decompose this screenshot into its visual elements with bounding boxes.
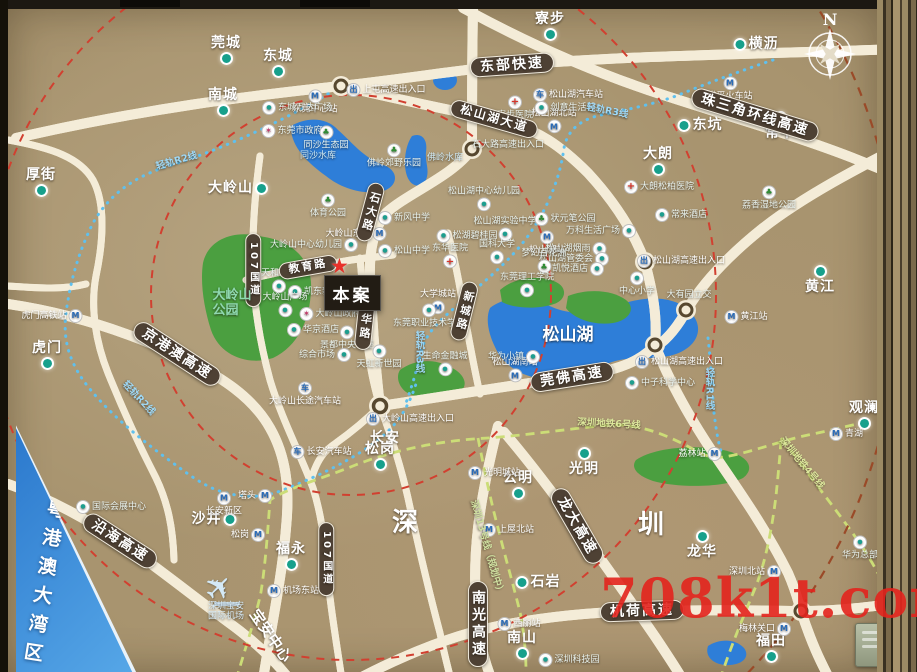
rail-label: 轻轨R1线 (703, 368, 714, 410)
cap-label: 莞佛高速 (529, 361, 615, 394)
rail-label: 轻轨R2线 (155, 151, 199, 173)
sta-icon: M (251, 528, 265, 542)
ceiling-mark (300, 0, 370, 7)
label-text: 莞城 (211, 35, 241, 51)
label-text: 中心小学 (619, 286, 655, 296)
label-text: 同沙生态园 (303, 140, 348, 150)
town-dot-icon (217, 104, 230, 117)
label-text: 深 (392, 509, 418, 539)
bus-label: 车大岭山长途汽车站 (269, 381, 341, 406)
gov-icon: ✶ (261, 124, 275, 138)
sta-label: M光明城站 (468, 466, 520, 480)
poi-icon: ● (853, 535, 867, 549)
label-text: 莞佛高速 (529, 361, 615, 394)
cap-label: 南光高速 (468, 581, 488, 667)
sta-icon: M (468, 466, 482, 480)
area-label: 深 (392, 509, 418, 539)
label-text: 梦幻百花洲 (521, 248, 566, 258)
map-photo: N 粤港澳大湾区 ✈ 莞城东城南城寮步横沥常平东坑大朗厚街大岭山黄江虎门观澜长安… (0, 0, 917, 672)
watermark-text: 708k1t.com (600, 566, 917, 630)
label-text: 机场东站 (283, 586, 319, 596)
sta-label: M西丽站 (497, 617, 540, 631)
poi-label: 东莞理工学院● (500, 272, 554, 297)
poi-label: 国科大学● (479, 239, 515, 264)
label-text: 东城万达广场 (278, 103, 332, 113)
bus-icon: 车 (298, 381, 312, 395)
cap-label: 107国道 (318, 522, 334, 596)
bus-icon: 车 (533, 88, 547, 102)
label-text: 荔林站 (678, 449, 705, 459)
label-text: 大朗松柏医院 (640, 182, 694, 192)
poi-label: 华为小镇● (488, 350, 540, 364)
town-dot-icon (35, 184, 48, 197)
label-text: 东华医院 (432, 243, 468, 253)
label-text: 中子科学中心 (641, 378, 695, 388)
sta-icon: M (547, 120, 561, 134)
label-text: 松山湖 (543, 326, 594, 346)
town-label: 福田 (756, 633, 786, 663)
poi-label: ●国际会展中心 (76, 500, 146, 514)
label-text: 光明 (569, 461, 599, 477)
label-text: 福永 (276, 541, 306, 557)
sta-label: 虎门高铁站M (21, 309, 82, 323)
exit-label: 出大岭山高速出入口 (366, 412, 454, 426)
poi-icon: ● (538, 653, 552, 667)
label-text: 佛岭水库 (427, 153, 463, 163)
label-text: 大有园立交 (666, 290, 711, 300)
poi-label: 万科生活广场● (566, 224, 636, 238)
exit-icon: 出 (637, 254, 651, 268)
label-text: 上屋北站 (498, 525, 534, 535)
poi-icon: ● (630, 271, 644, 285)
sta-label: M上屋北站 (482, 523, 534, 537)
label-text: 松岗 (231, 530, 249, 540)
poi-icon: ● (490, 251, 504, 265)
label-text: 大岭山中心幼儿园 (270, 240, 342, 250)
poi-icon: ● (344, 238, 358, 252)
sta-label: 塔头M (238, 489, 272, 503)
cap-label: 沿海高速 (79, 510, 160, 573)
park-icon: ♣ (387, 143, 401, 157)
label-text: 南光高速 (468, 581, 488, 667)
label-text: 宝安中心 (246, 606, 295, 665)
cap-label: 京港澳高速 (130, 318, 225, 389)
area-label: 松山湖 (543, 326, 594, 346)
park-label: 梦幻百花洲♣ (521, 248, 566, 273)
rail-label: 轻轨R3线 (413, 331, 424, 373)
park-icon: ♣ (534, 212, 548, 226)
town-label: 大岭山 (208, 180, 268, 196)
label-text: 轻轨R3线 (413, 331, 424, 373)
sta-icon: M (829, 427, 843, 441)
label-text: 大岭山广场 (262, 292, 307, 302)
town-label: 黄江 (805, 265, 835, 295)
label-text: 上屯高速出入口 (362, 85, 425, 95)
plain-label: 佛岭水库 (427, 153, 463, 163)
label-text: 东坑 (693, 117, 723, 133)
label-text: 大朗 (643, 146, 673, 162)
town-dot-icon (516, 576, 529, 589)
label-text: 体育公园 (310, 208, 346, 218)
town-label: 厚街 (26, 167, 56, 197)
label-text: 虎门高铁站 (21, 311, 66, 321)
label-text: 南山 (507, 630, 537, 646)
hosp-icon: + (624, 180, 638, 194)
cap-label: 龙大高速 (547, 485, 606, 568)
poi-icon: ● (287, 323, 301, 337)
label-text: 龙华 (687, 544, 717, 560)
label-text: 深圳宝安 国际机场 (208, 602, 244, 623)
poi-icon: ● (477, 198, 491, 212)
sta-icon: M (373, 227, 387, 241)
sta-icon: M (508, 369, 522, 383)
sta-label: M青湖 (829, 427, 863, 441)
label-text: 大岭山 (208, 180, 253, 196)
label-text: 深圳地铁4号线 (776, 436, 825, 492)
town-dot-icon (814, 265, 827, 278)
rail-label: 深圳地铁6号线 (577, 418, 641, 432)
poi-icon: ● (378, 211, 392, 225)
hosp-icon: + (443, 255, 457, 269)
area-label: 宝安中心 (246, 606, 295, 665)
poi-icon: ● (340, 325, 354, 339)
town-label: 南山 (507, 630, 537, 660)
label-text: 寮步 (535, 11, 565, 27)
label-text: 华为总部 (842, 550, 878, 560)
poi-icon: ● (378, 244, 392, 258)
label-text: 长安汽车站 (306, 447, 351, 457)
label-text: 新风中学 (394, 213, 430, 223)
town-label: 横沥 (734, 36, 779, 52)
town-label: 石岩 (516, 574, 561, 590)
sta-icon: M (69, 309, 83, 323)
label-text: 深圳科技园 (554, 655, 599, 665)
town-label: 南城 (208, 87, 238, 117)
label-text: 沿海高速 (79, 510, 160, 573)
town-dot-icon (255, 182, 268, 195)
town-dot-icon (41, 357, 54, 370)
ceiling-mark (120, 0, 180, 7)
poi-label: ●常来酒店 (655, 208, 707, 222)
label-text: 荔香湿地公园 (742, 200, 796, 210)
sta-icon: M (723, 76, 737, 90)
exit-label: 出上屯高速出入口 (346, 83, 425, 97)
town-dot-icon (220, 52, 233, 65)
poi-label: ●中心小学 (619, 271, 655, 296)
park-icon: ♣ (319, 125, 333, 139)
area-label: 圳 (638, 511, 664, 541)
plain-label: 同沙水库 (300, 151, 336, 161)
label-text: 东部快速 (469, 52, 554, 78)
board-frame-edge (0, 0, 8, 672)
label-text: 轻轨R2线 (120, 380, 157, 418)
label-text: 国际会展中心 (92, 502, 146, 512)
town-dot-icon (652, 163, 665, 176)
rail-label: 轻轨R2线 (120, 380, 157, 418)
town-dot-icon (512, 487, 525, 500)
label-text: 京港澳高速 (130, 318, 225, 389)
poi-label: 生命金融城● (422, 351, 467, 376)
poi-icon: ● (262, 101, 276, 115)
label-text: 常来酒店 (671, 210, 707, 220)
poi-icon: ● (422, 303, 436, 317)
label-text: 横沥 (749, 36, 779, 52)
town-dot-icon (285, 558, 298, 571)
poi-label: ●松山中学 (378, 244, 430, 258)
poi-icon: ● (590, 262, 604, 276)
label-text: 珠三角环线高速 (689, 86, 821, 144)
town-dot-icon (678, 119, 691, 132)
label-text: 南城 (208, 87, 238, 103)
poi-label: ●深圳科技园 (538, 653, 599, 667)
label-text: 生命金融城 (422, 351, 467, 361)
plain-label: 大有园立交 (666, 290, 711, 300)
label-text: 轻轨R1线 (703, 368, 714, 410)
town-label: 光明 (569, 447, 599, 477)
town-label: 东坑 (678, 117, 723, 133)
label-text: 长安新区 (206, 506, 242, 516)
sta-label: M机场东站 (267, 584, 319, 598)
label-text: 大岭山 公园 (212, 289, 251, 319)
poi-label: ●中子科学中心 (625, 376, 695, 390)
label-text: 西丽站 (513, 619, 540, 629)
town-label: 莞城 (211, 35, 241, 65)
label-text: 光明城站 (484, 468, 520, 478)
rail-label: 轻轨R3线 (585, 103, 629, 122)
label-text: 青湖 (845, 429, 863, 439)
town-label: 观澜 (849, 400, 879, 430)
label-text: 松山湖实验中学 (473, 216, 536, 226)
town-label: 龙华 (687, 530, 717, 560)
exit-label: 出松山湖高速出入口 (637, 254, 725, 268)
town-label: 虎门 (32, 340, 62, 370)
label-text: 状元笔公园 (550, 214, 595, 224)
town-dot-icon (696, 530, 709, 543)
town-dot-icon (374, 458, 387, 471)
park-label: ♣荔香湿地公园 (742, 185, 796, 210)
label-text: 松山湖高速出入口 (651, 357, 723, 367)
area-label: 大岭山 公园 (212, 289, 251, 319)
label-text: 大岭山高速出入口 (382, 414, 454, 424)
park-icon: ♣ (321, 193, 335, 207)
town-label: 寮步 (535, 11, 565, 41)
label-text: 石岩 (531, 574, 561, 590)
park-icon: ♣ (762, 185, 776, 199)
label-text: 石大路高速出入口 (472, 140, 544, 150)
poi-icon: ● (337, 348, 351, 362)
label-text: 深圳地铁6号线 (577, 418, 641, 432)
label-text: 万科生活广场 (566, 226, 620, 236)
sta-icon: M (724, 310, 738, 324)
park-label: ♣体育公园 (310, 193, 346, 218)
poi-icon: ● (372, 344, 386, 358)
label-text: 佛岭郊野乐园 (367, 158, 421, 168)
sta-label: 荔林站M (678, 447, 721, 461)
ceiling-strip (0, 0, 917, 9)
label-text: 轻轨R3线 (585, 103, 629, 122)
poi-label: 综合市场● (299, 348, 351, 362)
town-label: 大朗 (643, 146, 673, 176)
label-text: 黄江 (805, 279, 835, 295)
exit-icon: 出 (366, 412, 380, 426)
poi-label: 大岭山中心幼儿园● (270, 238, 358, 252)
sta-icon: M (497, 617, 511, 631)
label-text: 大学城站 (420, 289, 456, 299)
sta-label: M长安新区 (206, 491, 242, 516)
poi-icon: ● (520, 284, 534, 298)
poi-icon: ● (622, 224, 636, 238)
gov-icon: ✶ (299, 307, 313, 321)
label-text: 国科大学 (479, 239, 515, 249)
town-label: 东城 (263, 48, 293, 78)
label-text: 松山湖中心幼儿园 (448, 186, 520, 196)
sta-icon: M (217, 491, 231, 505)
hosp-icon: + (508, 95, 522, 109)
label-text: 塔头 (238, 491, 256, 501)
town-label: 福永 (276, 541, 306, 571)
poi-icon: ● (625, 376, 639, 390)
label-text: 圳 (638, 511, 664, 541)
hosp-label: 东华医院+ (432, 243, 468, 268)
label-text: 综合市场 (299, 350, 335, 360)
park-label: ♣佛岭郊野乐园 (367, 143, 421, 168)
label-text: 厚街 (26, 167, 56, 183)
town-dot-icon (544, 28, 557, 41)
town-label: 松岗 (365, 441, 395, 471)
exit-icon: 出 (635, 355, 649, 369)
town-dot-icon (765, 650, 778, 663)
poi-label: ●新风中学 (378, 211, 430, 225)
bus-label: 车松山湖汽车站 (533, 88, 603, 102)
cap-label: 东部快速 (469, 52, 554, 78)
town-dot-icon (516, 647, 529, 660)
poi-icon: ● (438, 363, 452, 377)
bus-icon: 车 (290, 445, 304, 459)
label-text: 松山中学 (394, 246, 430, 256)
sta-label: M黄江站 (724, 310, 767, 324)
poi-label: ●华为总部 (842, 535, 878, 560)
label-text: 107国道 (318, 522, 334, 596)
poi-icon: ● (534, 101, 548, 115)
poi-icon: ● (655, 208, 669, 222)
park-label: ♣同沙生态园 (303, 125, 348, 150)
project-site-marker: 本案 (324, 275, 381, 311)
label-text: 虎门 (32, 340, 62, 356)
sta-icon: M (258, 489, 272, 503)
poi-icon: ● (526, 350, 540, 364)
exit-icon: 出 (346, 83, 360, 97)
label-text: 黄江站 (740, 312, 767, 322)
label-text: 龙大高速 (547, 485, 606, 568)
plain-label: 石大路高速出入口 (472, 140, 544, 150)
sta-icon: M (267, 584, 281, 598)
sta-icon: M (708, 447, 722, 461)
town-dot-icon (734, 38, 747, 51)
poi-label: 松山湖中心幼儿园● (448, 186, 520, 211)
plain-label: 深圳宝安 国际机场 (208, 602, 244, 623)
cap-label: 珠三角环线高速 (689, 86, 821, 144)
label-text: 同沙水库 (300, 151, 336, 161)
town-dot-icon (578, 447, 591, 460)
poi-icon: ● (278, 304, 292, 318)
label-text: 大岭山长途汽车站 (269, 396, 341, 406)
hosp-label: +大朗松柏医院 (624, 180, 694, 194)
label-text: 松岗 (365, 441, 395, 457)
label-text: 东城 (263, 48, 293, 64)
label-text: 轻轨R2线 (155, 151, 199, 173)
poi-label: ●东城万达广场 (262, 101, 332, 115)
label-text: 松山湖汽车站 (549, 90, 603, 100)
label-text: 东莞理工学院 (500, 272, 554, 282)
label-text: 华为小镇 (488, 352, 524, 362)
rail-label: 深圳地铁4号线 (776, 436, 825, 492)
poi-icon: ● (436, 229, 450, 243)
bus-label: 车长安汽车站 (290, 445, 351, 459)
town-dot-icon (272, 65, 285, 78)
label-text: 松山湖高速出入口 (653, 256, 725, 266)
sta-label: 松岗M (231, 528, 265, 542)
label-text: 观澜 (849, 400, 879, 416)
label-text: 天虹新世园 (356, 359, 401, 369)
